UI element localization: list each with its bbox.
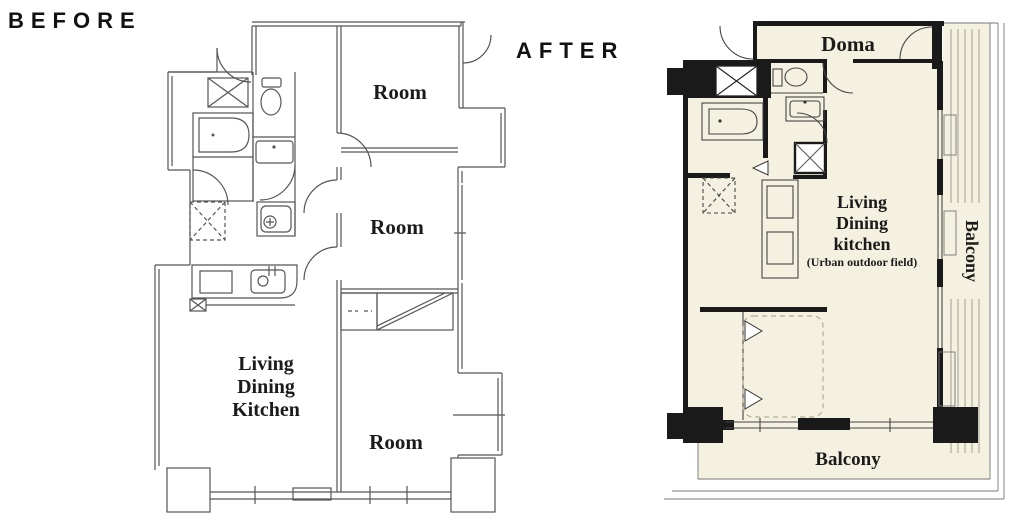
- door-arc: [304, 180, 337, 213]
- door-arc: [337, 133, 371, 167]
- before-floor-plan: Room Room Room Living Dining Kitchen: [145, 15, 515, 515]
- ldk-label-line2: Dining: [237, 376, 295, 398]
- room-label-bottom: Room: [369, 430, 423, 454]
- after-shaft: [716, 66, 757, 96]
- laundry-icon: [257, 202, 295, 236]
- before-label: BEFORE: [8, 8, 142, 34]
- entry-door-arc: [217, 48, 251, 82]
- after-ldk-line4: (Urban outdoor field): [807, 255, 917, 269]
- main-floor: [685, 61, 943, 427]
- ldk-label-line3: Kitchen: [232, 399, 300, 421]
- after-floor-plan: Doma Living Dining kitchen (Urban outdoo…: [660, 15, 1024, 526]
- balcony-right-label: Balcony: [962, 220, 982, 282]
- pillar: [167, 468, 210, 512]
- room-label-top: Room: [373, 80, 427, 104]
- after-ldk-line3: kitchen: [833, 234, 890, 254]
- kitchen-counter-icon: [190, 265, 297, 311]
- pillar: [683, 407, 723, 443]
- washbasin-icon: [256, 141, 293, 163]
- door-arc: [304, 247, 337, 280]
- balcony-bottom-label: Balcony: [815, 449, 881, 470]
- doma-label: Doma: [821, 32, 875, 56]
- before-dashed-closet: [190, 202, 225, 240]
- after-ldk-line2: Dining: [836, 213, 888, 233]
- room-door-arc: [463, 35, 491, 63]
- before-shaft: [208, 78, 248, 107]
- pillar: [933, 407, 978, 443]
- bottom-door: [293, 488, 331, 500]
- pillar: [667, 413, 685, 439]
- after-label: AFTER: [516, 38, 624, 64]
- after-ldk-line1: Living: [837, 192, 887, 212]
- pillar: [451, 458, 495, 512]
- after-hatch-box: [795, 143, 825, 173]
- before-closet: [341, 293, 453, 330]
- toilet-icon: [253, 72, 295, 202]
- ldk-label-line1: Living: [238, 353, 294, 375]
- before-door-arcs: [193, 165, 295, 205]
- room-label-middle: Room: [370, 215, 424, 239]
